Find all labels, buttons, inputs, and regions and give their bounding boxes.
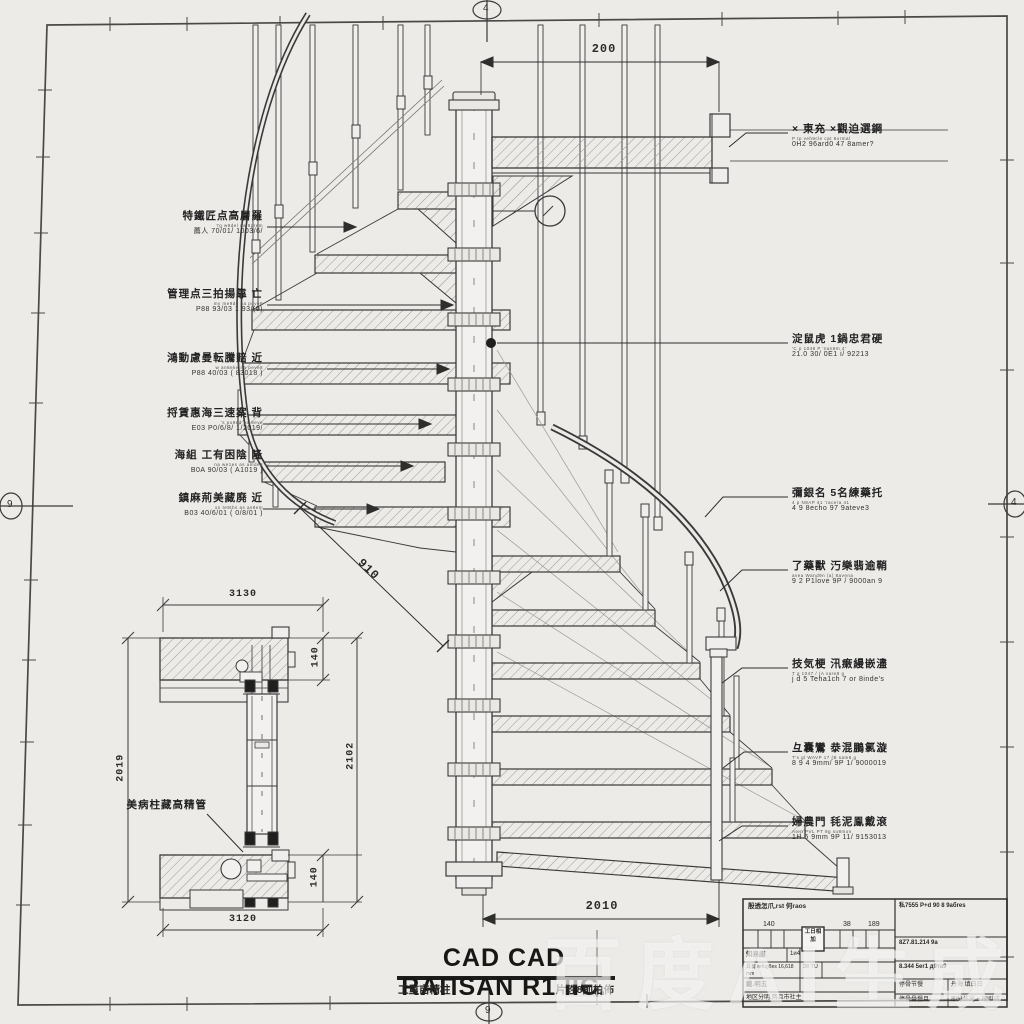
label-code: j d 5 Teha1ch 7 or 8inde's — [792, 676, 942, 684]
label-text: 特鐵匠点高層羅 — [85, 211, 263, 223]
titleblock-r5b: 即分作光 + 硬引成 — [951, 997, 1000, 1004]
dim-detail-top: 3130 — [212, 589, 274, 601]
left-label-4: 捋賃惠海三速案 背 's po9ed pa 8eve E03 P0/6/8/ 1… — [85, 408, 263, 433]
drawing-subtitle-left: 工重亩精柱 — [398, 982, 451, 997]
label-text: 彌銀名 5名練藥托 — [792, 488, 942, 500]
titleblock-r1: 私7555 P+d 90 8 9абres — [899, 903, 966, 910]
dim-bottom: 2010 — [570, 900, 634, 914]
right-label-5: 技気梗 汛瘷縵嵌濜 T g 1047 / (A vare8 g j d 5 Te… — [792, 659, 942, 684]
label-text: 管理点三拍揚靠 亡 — [85, 289, 263, 301]
dim-slab-top: 140 — [310, 633, 322, 681]
detail-label: 美病柱藏高精管 — [85, 800, 207, 812]
left-label-5: 海組 工有困陰 隆 na we1es as amde8 B0A 90/03 ( … — [85, 450, 263, 475]
titleblock-row-a2: 1и4 — [790, 951, 800, 958]
titleblock-row-b1: 具有 refug8es 16,618 mm — [746, 964, 798, 977]
label-text: 捋賃惠海三速案 背 — [85, 408, 263, 420]
titleblock-r2: 8Z7.81.214 9а — [899, 940, 938, 947]
column-node-dot — [486, 338, 496, 348]
axis-glyph-right: 4 — [1011, 497, 1017, 509]
label-code: 0H2 96ard0 47 8amer? — [792, 141, 942, 149]
dim-detail-right: 2102 — [345, 726, 357, 786]
titleblock-num-3: 189 — [868, 921, 880, 929]
right-label-2: 淀鼠虎 1鍋忠君硬 'C p 1048 P 'nan8m 4' 21.0 30/… — [792, 334, 942, 359]
dim-top: 200 — [582, 43, 626, 57]
treads-right — [492, 350, 848, 892]
label-code: 8 9 4 9mm/ 9P 1/ 9000019 — [792, 760, 942, 768]
titleblock-r4a: 停骨节慢 — [899, 982, 923, 989]
label-text: 淀鼠虎 1鍋忠君硬 — [792, 334, 942, 346]
label-text: × 東充 ×觀迫選鋼 — [792, 124, 942, 136]
titleblock-row-b3: 38 TU — [803, 964, 818, 970]
label-text: 鎮麻荊美藏廃 近 — [85, 493, 263, 505]
titleblock-stamp: 工日相加 — [803, 929, 823, 944]
title-block-grid — [743, 899, 1007, 1007]
dim-slab-bottom: 140 — [309, 853, 321, 901]
label-text: 鴻動慮曼転騰賠 近 — [85, 353, 263, 365]
dim-detail-left: 2019 — [115, 738, 127, 798]
left-label-3: 鴻動慮曼転騰賠 近 w an8eke na peve8 P88 40/03 ( … — [85, 353, 263, 378]
titleblock-row-d: 地区分明,两且市社主 — [746, 995, 802, 1002]
titleblock-r5a: 停骨骨慢且 — [899, 997, 929, 1004]
label-code: E03 P0/6/8/ 1/2019/ — [85, 425, 263, 433]
dim-detail-bottom: 3120 — [212, 914, 274, 926]
axis-glyph-bottom: 9 — [485, 1005, 491, 1017]
cad-sheet: 200 2010 910 3130 3120 2019 2102 140 140… — [0, 0, 1024, 1024]
titleblock-num-2: 38 — [843, 921, 851, 929]
right-label-3: 彌銀名 5名練藥托 4 p N8AP 41 'racera 41 4 9 8ec… — [792, 488, 942, 513]
label-text: 婦農門 㲎泥鳯戴滾 — [792, 817, 942, 829]
label-code: 1H 5 9mm 9P 11/ 9153013 — [792, 834, 942, 842]
label-code: 薦人 70/01/ 1003/6/ — [85, 228, 263, 236]
detail-section — [122, 597, 363, 937]
left-label-6: 鎮麻荊美藏廃 近 on te9ths as as8em B03 40/6/01 … — [85, 493, 263, 518]
label-leaders — [207, 133, 788, 852]
right-label-7: 婦農門 㲎泥鳯戴滾 Aten PVL PT 9g su8mon 1H 5 9mm… — [792, 817, 942, 842]
titleblock-r3: 8.344 5er1 д9та9 — [899, 964, 946, 971]
label-text: 技気梗 汛瘷縵嵌濜 — [792, 659, 942, 671]
titleblock-r4b: 丹海 填白日 — [951, 982, 983, 989]
right-label-6: 彑囊鸞 㳟混鵬氯漩 T's gl WAVP 17 (B sam8 g 8 9 4… — [792, 743, 942, 768]
label-text: 海組 工有困陰 隆 — [85, 450, 263, 462]
left-label-1: 特鐵匠点高層羅 7g w9del ua 8prem 薦人 70/01/ 1003… — [85, 211, 263, 236]
titleblock-row-c: 戴.明五 — [746, 981, 767, 988]
label-text: 彑囊鸞 㳟混鵬氯漩 — [792, 743, 942, 755]
drawing-subtitle-right: 片珄8削柏佈 — [520, 982, 614, 997]
label-code: P88 93/03 1 93/(0) — [85, 306, 263, 314]
titleblock-num-1: 140 — [763, 921, 775, 929]
label-code: 9 2 P1love 9P / 9000an 9 — [792, 578, 942, 586]
label-code: P88 40/03 ( 83018 ) — [85, 370, 263, 378]
axis-glyph-left: 9 — [7, 499, 13, 511]
titleblock-header-left: 殷透怎爪,rst 何raos — [748, 903, 806, 910]
label-code: B03 40/6/01 ( 0/8/01 ) — [85, 510, 263, 518]
label-code: 21.0 30/ 0E1 i/ 92213 — [792, 351, 942, 359]
label-code: 4 9 8echo 97 9ateve3 — [792, 505, 942, 513]
label-text: 了藥獸 汅樂翡逾鞘 — [792, 561, 942, 573]
titleblock-row-a1: 知易座 — [746, 951, 766, 958]
right-label-1: × 東充 ×觀迫選鋼 P tp veh9cle cat 8ormal 0H2 9… — [792, 124, 942, 149]
left-label-2: 管理点三拍揚靠 亡 my me9de na pove8 P88 93/03 1 … — [85, 289, 263, 314]
label-code: B0A 90/03 ( A1019 ) — [85, 467, 263, 475]
right-label-4: 了藥獸 汅樂翡逾鞘 avea Wand9n (a) 8avena 9 2 P1l… — [792, 561, 942, 586]
axis-glyph-top: 4 — [483, 3, 489, 15]
label-text: 美病柱藏高精管 — [85, 800, 207, 812]
